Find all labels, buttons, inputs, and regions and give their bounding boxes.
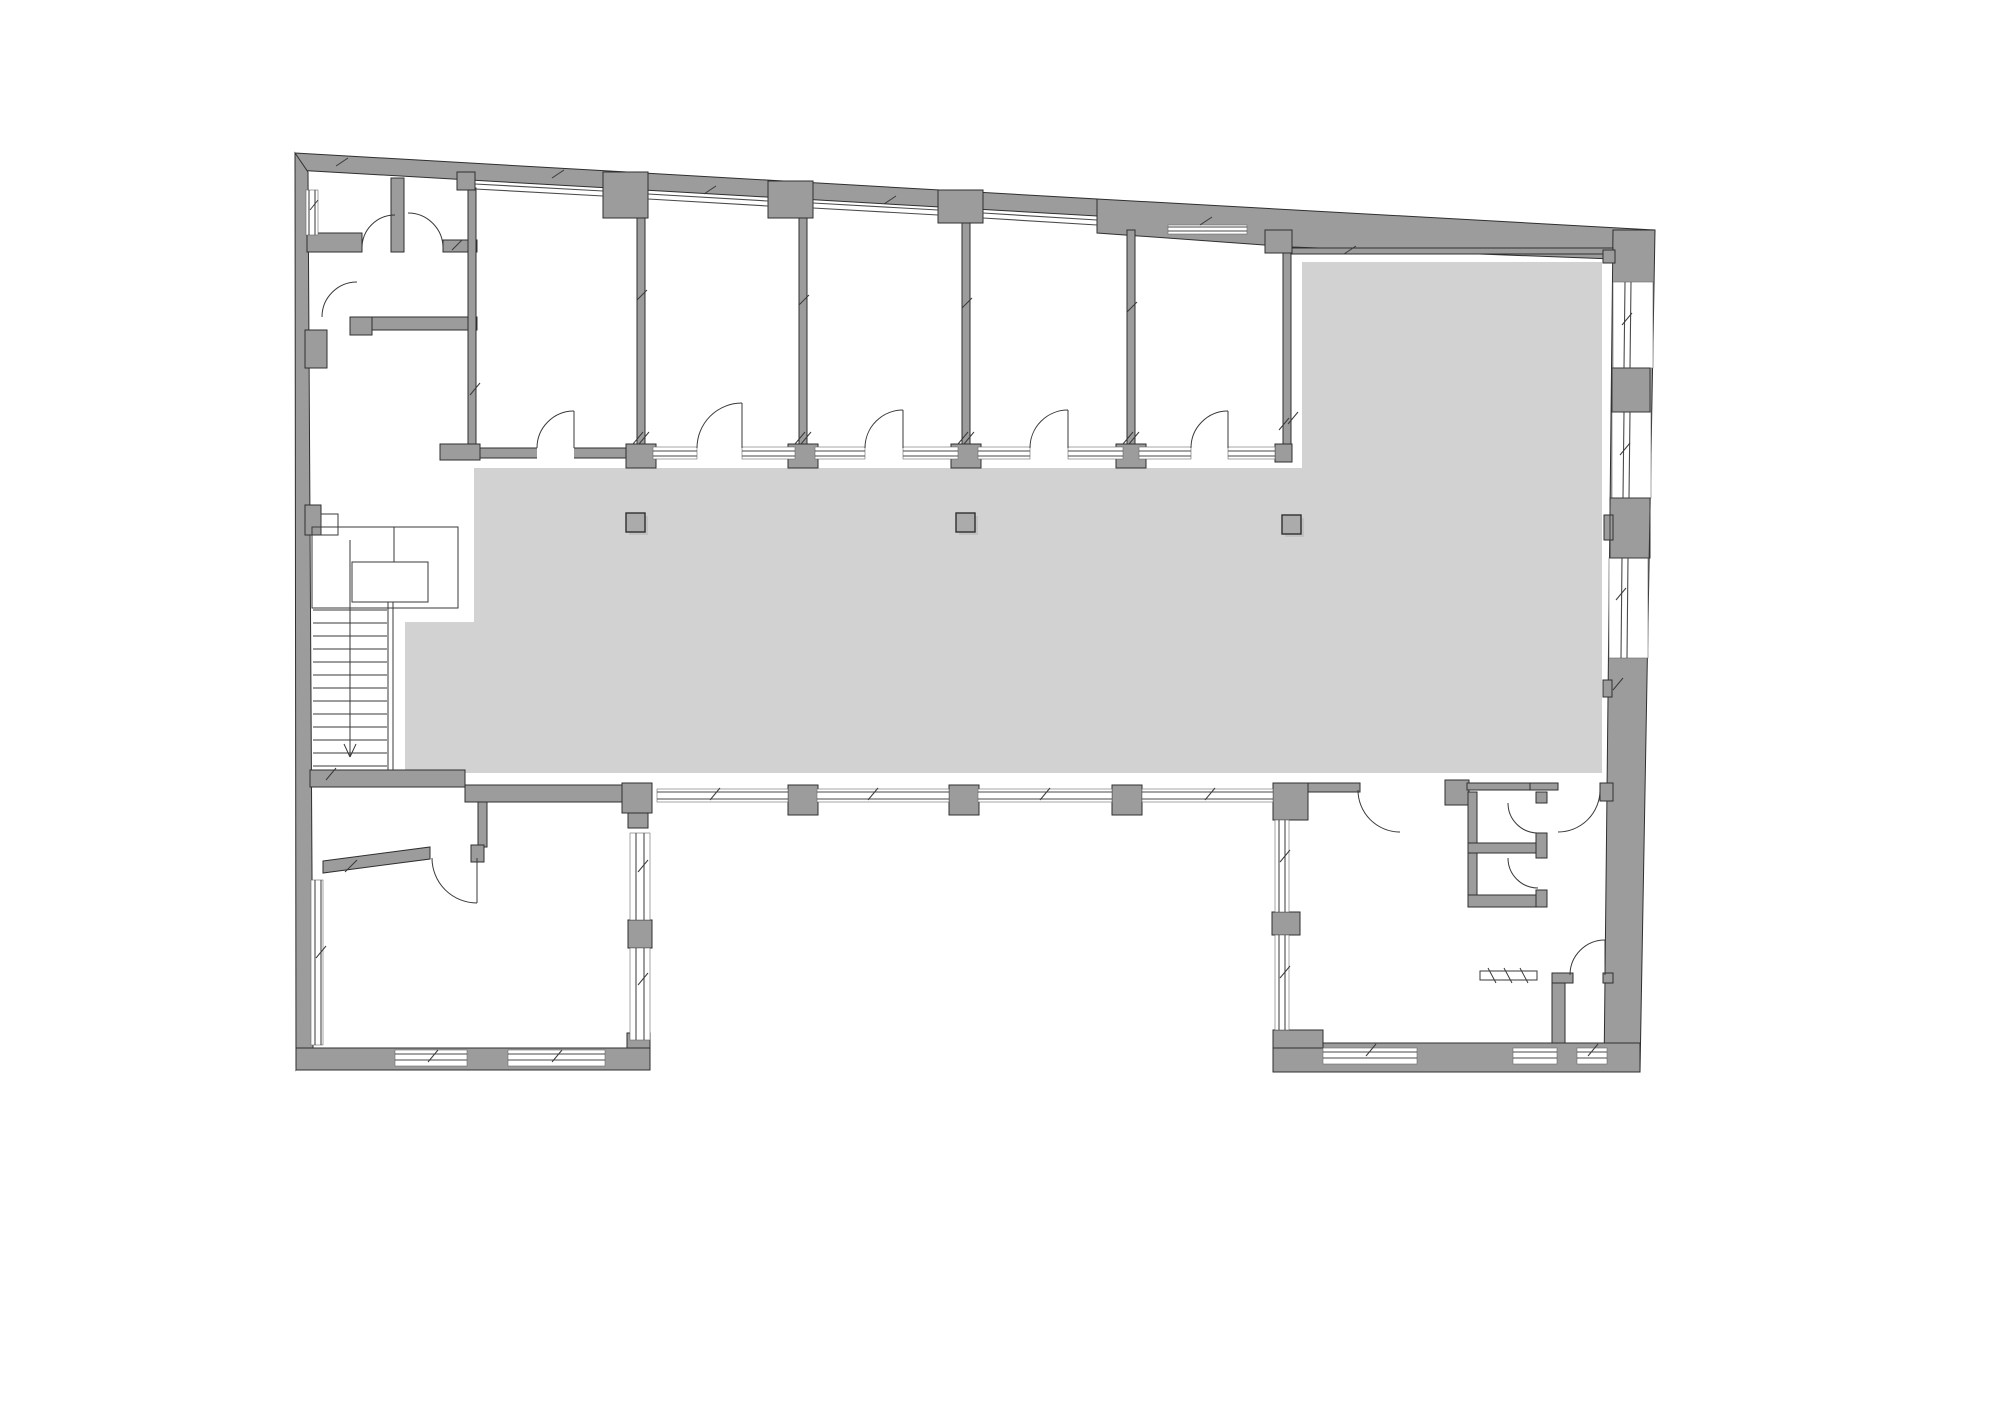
- column: [1282, 515, 1301, 534]
- window: [1577, 1048, 1607, 1064]
- wall: [768, 181, 813, 218]
- wall: [637, 218, 645, 448]
- wall: [1273, 1030, 1323, 1048]
- floor-plan-svg: [0, 0, 2000, 1414]
- wall: [603, 172, 648, 218]
- wall: [949, 785, 979, 815]
- wall: [1468, 843, 1547, 853]
- window: [1139, 447, 1191, 459]
- door-opening: [1030, 446, 1068, 459]
- door-opening: [697, 446, 742, 459]
- wall: [1292, 248, 1613, 254]
- wall: [622, 783, 652, 813]
- wall: [1308, 783, 1360, 792]
- wall: [628, 920, 652, 948]
- wall: [440, 444, 480, 460]
- wall: [1265, 230, 1292, 253]
- wall: [1127, 230, 1135, 448]
- wall: [307, 233, 362, 252]
- wall: [1530, 783, 1558, 790]
- window: [1612, 412, 1651, 498]
- wall: [1467, 783, 1530, 790]
- wall: [1603, 250, 1615, 263]
- window: [815, 447, 865, 459]
- window: [1513, 1048, 1557, 1064]
- window: [657, 789, 788, 802]
- wall: [1273, 783, 1308, 820]
- window: [978, 789, 1112, 802]
- wall: [468, 188, 476, 448]
- window: [1323, 1048, 1417, 1064]
- wall: [1600, 783, 1613, 801]
- wall: [1604, 515, 1613, 540]
- window: [630, 948, 650, 1040]
- wall: [938, 190, 983, 223]
- window: [1228, 447, 1275, 459]
- wall: [1283, 253, 1291, 460]
- wall: [1603, 680, 1612, 697]
- wall: [310, 770, 465, 787]
- wall: [457, 172, 475, 190]
- window: [508, 1050, 605, 1066]
- window: [1142, 789, 1273, 802]
- window: [1168, 225, 1247, 234]
- window: [903, 447, 958, 459]
- wall: [350, 317, 372, 335]
- wall: [788, 785, 818, 815]
- wall: [626, 444, 656, 468]
- door-opening: [537, 446, 574, 459]
- door-opening: [865, 446, 903, 459]
- wall: [1468, 895, 1547, 907]
- window: [742, 447, 795, 459]
- wall: [1112, 785, 1142, 815]
- floor-plan-canvas: [0, 0, 2000, 1414]
- wall: [305, 505, 321, 535]
- window: [817, 789, 949, 802]
- wall: [799, 218, 807, 448]
- wall: [1536, 792, 1547, 803]
- window: [1275, 935, 1289, 1030]
- wall: [1272, 912, 1300, 935]
- wall: [1536, 890, 1547, 907]
- wall: [372, 317, 477, 330]
- window: [1609, 558, 1648, 658]
- window: [653, 447, 697, 459]
- wall: [1536, 833, 1547, 858]
- window: [978, 447, 1030, 459]
- window: [630, 833, 650, 920]
- wall: [305, 330, 327, 368]
- window: [306, 190, 318, 235]
- door-opening: [1191, 446, 1228, 459]
- wall: [962, 223, 970, 448]
- wall: [1275, 444, 1292, 462]
- wall: [1445, 780, 1469, 805]
- wall: [478, 802, 487, 847]
- wall: [465, 785, 623, 802]
- column: [626, 513, 645, 532]
- window: [1068, 447, 1123, 459]
- column: [956, 513, 975, 532]
- window: [1613, 282, 1653, 368]
- window: [1275, 820, 1289, 912]
- wall: [628, 813, 648, 828]
